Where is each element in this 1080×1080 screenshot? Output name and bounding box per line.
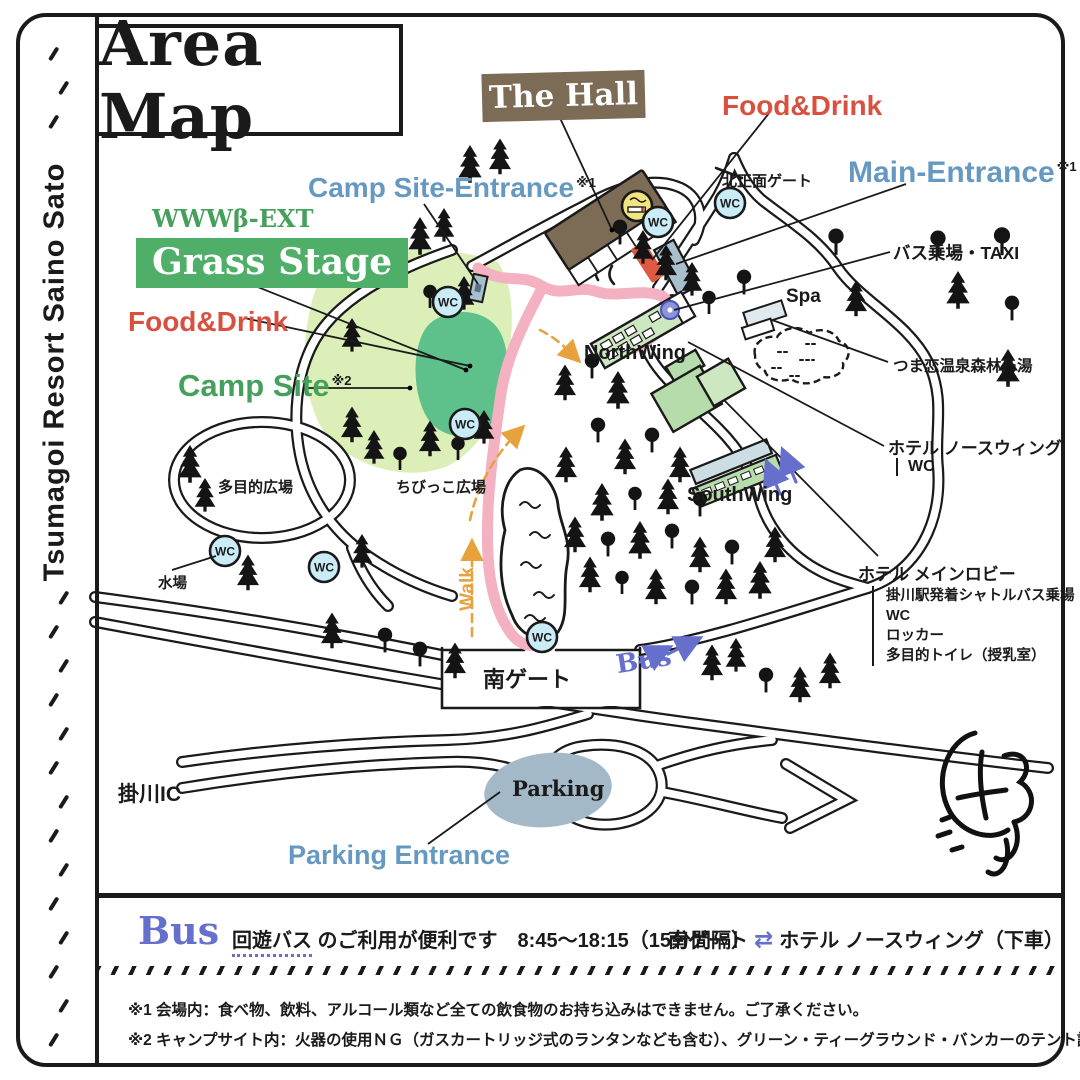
parking-entrance-label: Parking Entrance — [288, 840, 510, 871]
camp-site-entrance-label: Camp Site-Entrance※1 — [308, 172, 596, 204]
wc-marker: WC — [433, 287, 463, 317]
food-drink-left-label: Food&Drink — [128, 306, 288, 338]
food-drink-top-label: Food&Drink — [722, 90, 882, 122]
lobby-item: ロッカー — [886, 626, 1075, 646]
the-hall-label: The Hall — [481, 70, 645, 122]
south-gate-label: 南ゲート — [483, 662, 571, 694]
grass-stage-label: Grass Stage — [136, 238, 408, 288]
page-title: Area Map — [95, 24, 403, 136]
main-entrance-label: Main-Entrance※1 — [848, 156, 1077, 190]
wc-marker: WC — [643, 207, 673, 237]
svg-text:WC: WC — [314, 561, 334, 575]
wc-marker: WC — [527, 622, 557, 652]
two-way-arrow-icon: ⇄ — [748, 926, 779, 952]
resort-name-vertical: Tsumagoi Resort Saino Sato — [39, 163, 72, 582]
hotel-north-wing-label: ホテル ノースウィング — [888, 434, 1062, 459]
north-gate-label: 北正面ゲート — [722, 170, 812, 191]
pond-center — [501, 468, 568, 638]
svg-text:WC: WC — [720, 197, 740, 211]
wc-marker: WC — [210, 536, 240, 566]
wc-marker: WC — [715, 188, 745, 218]
svg-text:WC: WC — [438, 296, 458, 310]
water-station-label: 水場 — [158, 572, 187, 593]
bus-route-text: 南ゲート⇄ホテル ノースウィング（下車） — [668, 924, 1064, 953]
svg-text:WC: WC — [532, 631, 552, 645]
hotel-north-wing-wc-label: WC — [896, 458, 935, 476]
left-band-divider — [95, 15, 99, 1065]
hand-dash-divider — [97, 966, 1058, 975]
stage-brand-label: WWWβ-EXT — [152, 204, 314, 233]
svg-text:WC: WC — [455, 418, 475, 432]
footer-divider — [97, 893, 1061, 898]
kakegawa-ic-label: 掛川IC — [118, 778, 181, 808]
lobby-item: WC — [886, 606, 1075, 626]
bus-service-name: 回遊バス — [232, 930, 312, 957]
south-wing-label: SouthWing — [687, 484, 792, 507]
signature-doodle — [938, 733, 1031, 874]
footnote: ※2 キャンプサイト内：火器の使用ＮＧ（ガスカートリッジ式のランタンなども含む）… — [128, 1028, 1080, 1050]
camp-site-label: Camp Site※2 — [178, 368, 351, 404]
parking-label: Parking — [512, 776, 604, 801]
svg-text:WC: WC — [648, 216, 668, 230]
lobby-item: 掛川駅発着シャトルバス乗場 — [886, 586, 1075, 606]
footnote: ※1 会場内：食べ物、飲料、アルコール類など全ての飲食物のお持ち込みはできません… — [128, 998, 868, 1020]
bus-taxi-label: バス乗場・TAXI — [893, 240, 1019, 265]
spa-lake — [755, 328, 849, 383]
wc-marker: WC — [450, 409, 480, 439]
lobby-title-label: ホテル メインロビー — [858, 560, 1016, 585]
multipurpose-plaza-label: 多目的広場 — [218, 476, 293, 497]
kids-plaza-label: ちびっこ広場 — [396, 476, 486, 497]
wc-marker: WC — [309, 552, 339, 582]
north-wing-label: NorthWing — [584, 342, 686, 365]
walk-label: Walk — [457, 567, 479, 611]
svg-text:WC: WC — [215, 545, 235, 559]
onsen-label: つま恋温泉森林乃湯 — [893, 354, 1033, 376]
area-map-canvas: WCWCWCWCWCWCWC — [0, 0, 1080, 1080]
spa-label: Spa — [786, 286, 821, 308]
lobby-items-list: 掛川駅発着シャトルバス乗場WCロッカー多目的トイレ（授乳室） — [872, 586, 1075, 666]
bus-info-heading: Bus — [138, 908, 219, 953]
lobby-item: 多目的トイレ（授乳室） — [886, 646, 1075, 666]
